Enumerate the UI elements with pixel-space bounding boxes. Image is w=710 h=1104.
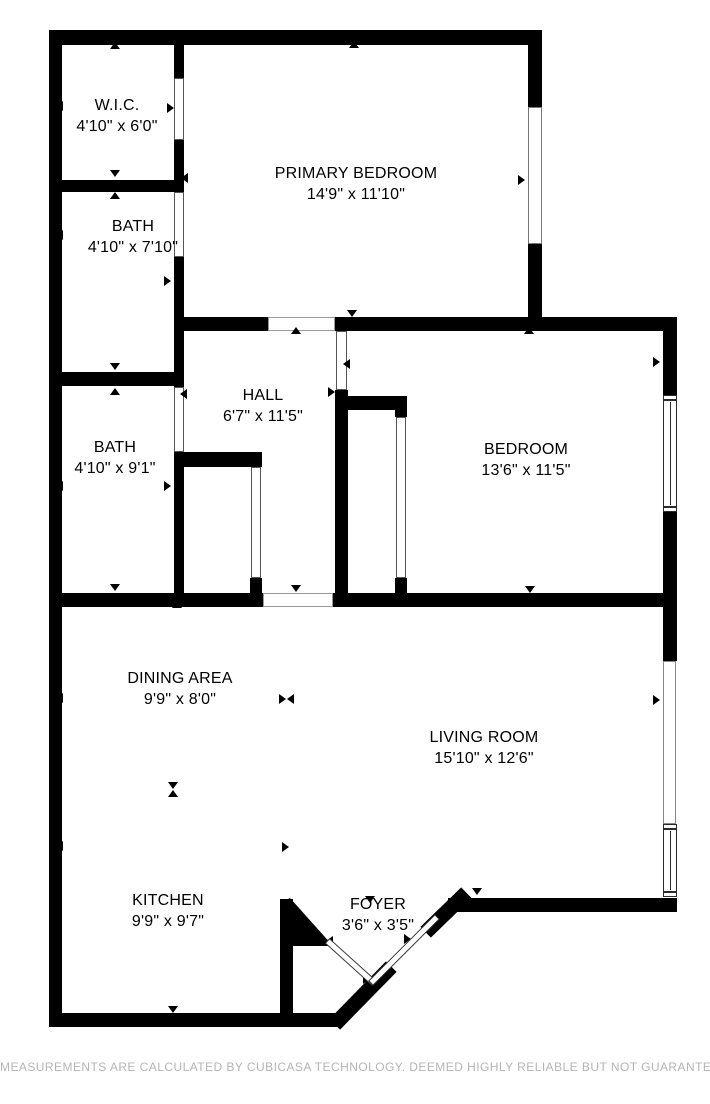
- room-label-bath2: BATH4'10" x 9'1": [0, 437, 235, 479]
- room-label-wic: W.I.C.4'10" x 6'0": [0, 95, 237, 137]
- room-label-bath1: BATH4'10" x 7'10": [13, 216, 253, 258]
- room-label-dining: DINING AREA9'9" x 8'0": [60, 668, 300, 710]
- room-label-living: LIVING ROOM15'10" x 12'6": [364, 727, 604, 769]
- room-label-foyer: FOYER3'6" x 3'5": [258, 894, 498, 936]
- entry-door-leaf: [326, 939, 377, 985]
- room-label-hall: HALL6'7" x 11'5": [143, 385, 383, 427]
- room-label-kitchen: KITCHEN9'9" x 9'7": [48, 890, 288, 932]
- room-label-primary: PRIMARY BEDROOM14'9" x 11'10": [236, 163, 476, 205]
- disclaimer-text: MEASUREMENTS ARE CALCULATED BY CUBICASA …: [0, 1060, 710, 1074]
- floor-plan: W.I.C.4'10" x 6'0" PRIMARY BEDROOM14'9" …: [0, 0, 710, 1104]
- room-label-bedroom: BEDROOM13'6" x 11'5": [406, 439, 646, 481]
